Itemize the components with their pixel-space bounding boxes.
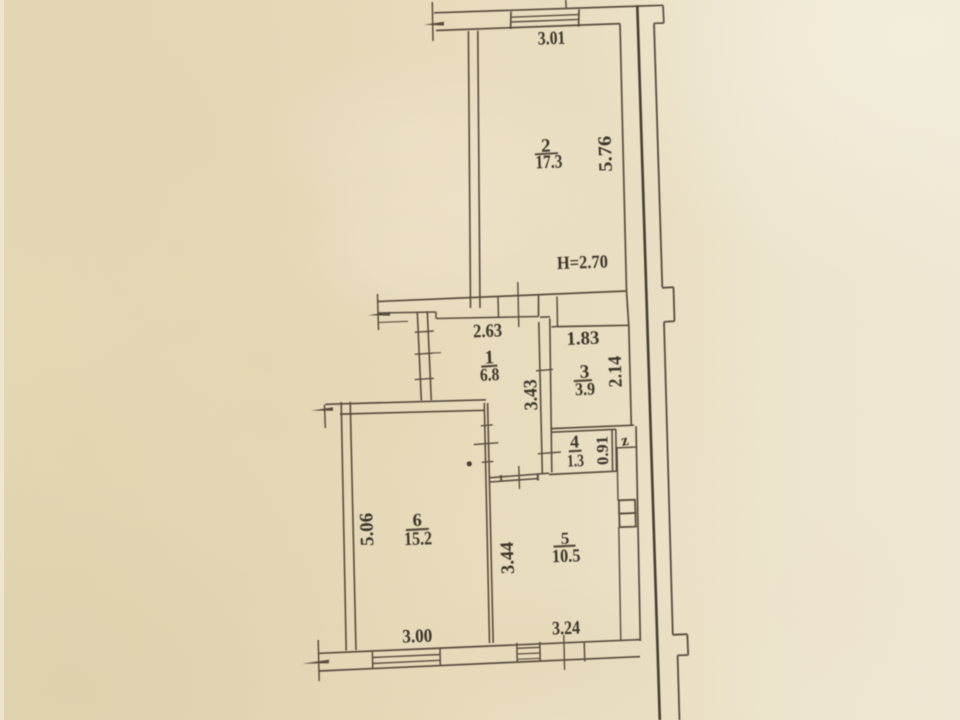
svg-text:2.63: 2.63 xyxy=(473,320,503,342)
svg-text:3.24: 3.24 xyxy=(552,618,581,640)
svg-text:15.2: 15.2 xyxy=(404,528,433,550)
svg-text:1.83: 1.83 xyxy=(566,328,600,350)
svg-text:1.3: 1.3 xyxy=(567,450,585,471)
svg-text:5.06: 5.06 xyxy=(356,513,378,547)
svg-text:3.43: 3.43 xyxy=(520,379,542,411)
svg-text:17.3: 17.3 xyxy=(535,151,563,173)
svg-text:2.14: 2.14 xyxy=(605,355,627,388)
svg-text:6.8: 6.8 xyxy=(480,364,500,385)
svg-text:5.76: 5.76 xyxy=(595,135,617,172)
svg-text:3.01: 3.01 xyxy=(537,28,565,50)
svg-text:10.5: 10.5 xyxy=(552,546,581,567)
svg-text:3.9: 3.9 xyxy=(575,379,596,400)
svg-text:5: 5 xyxy=(560,529,569,548)
svg-text:4: 4 xyxy=(570,431,580,451)
svg-text:3.00: 3.00 xyxy=(402,626,433,648)
svg-text:0.91: 0.91 xyxy=(592,436,612,466)
svg-text:H=2.70: H=2.70 xyxy=(557,252,609,274)
svg-text:3.44: 3.44 xyxy=(497,541,519,574)
